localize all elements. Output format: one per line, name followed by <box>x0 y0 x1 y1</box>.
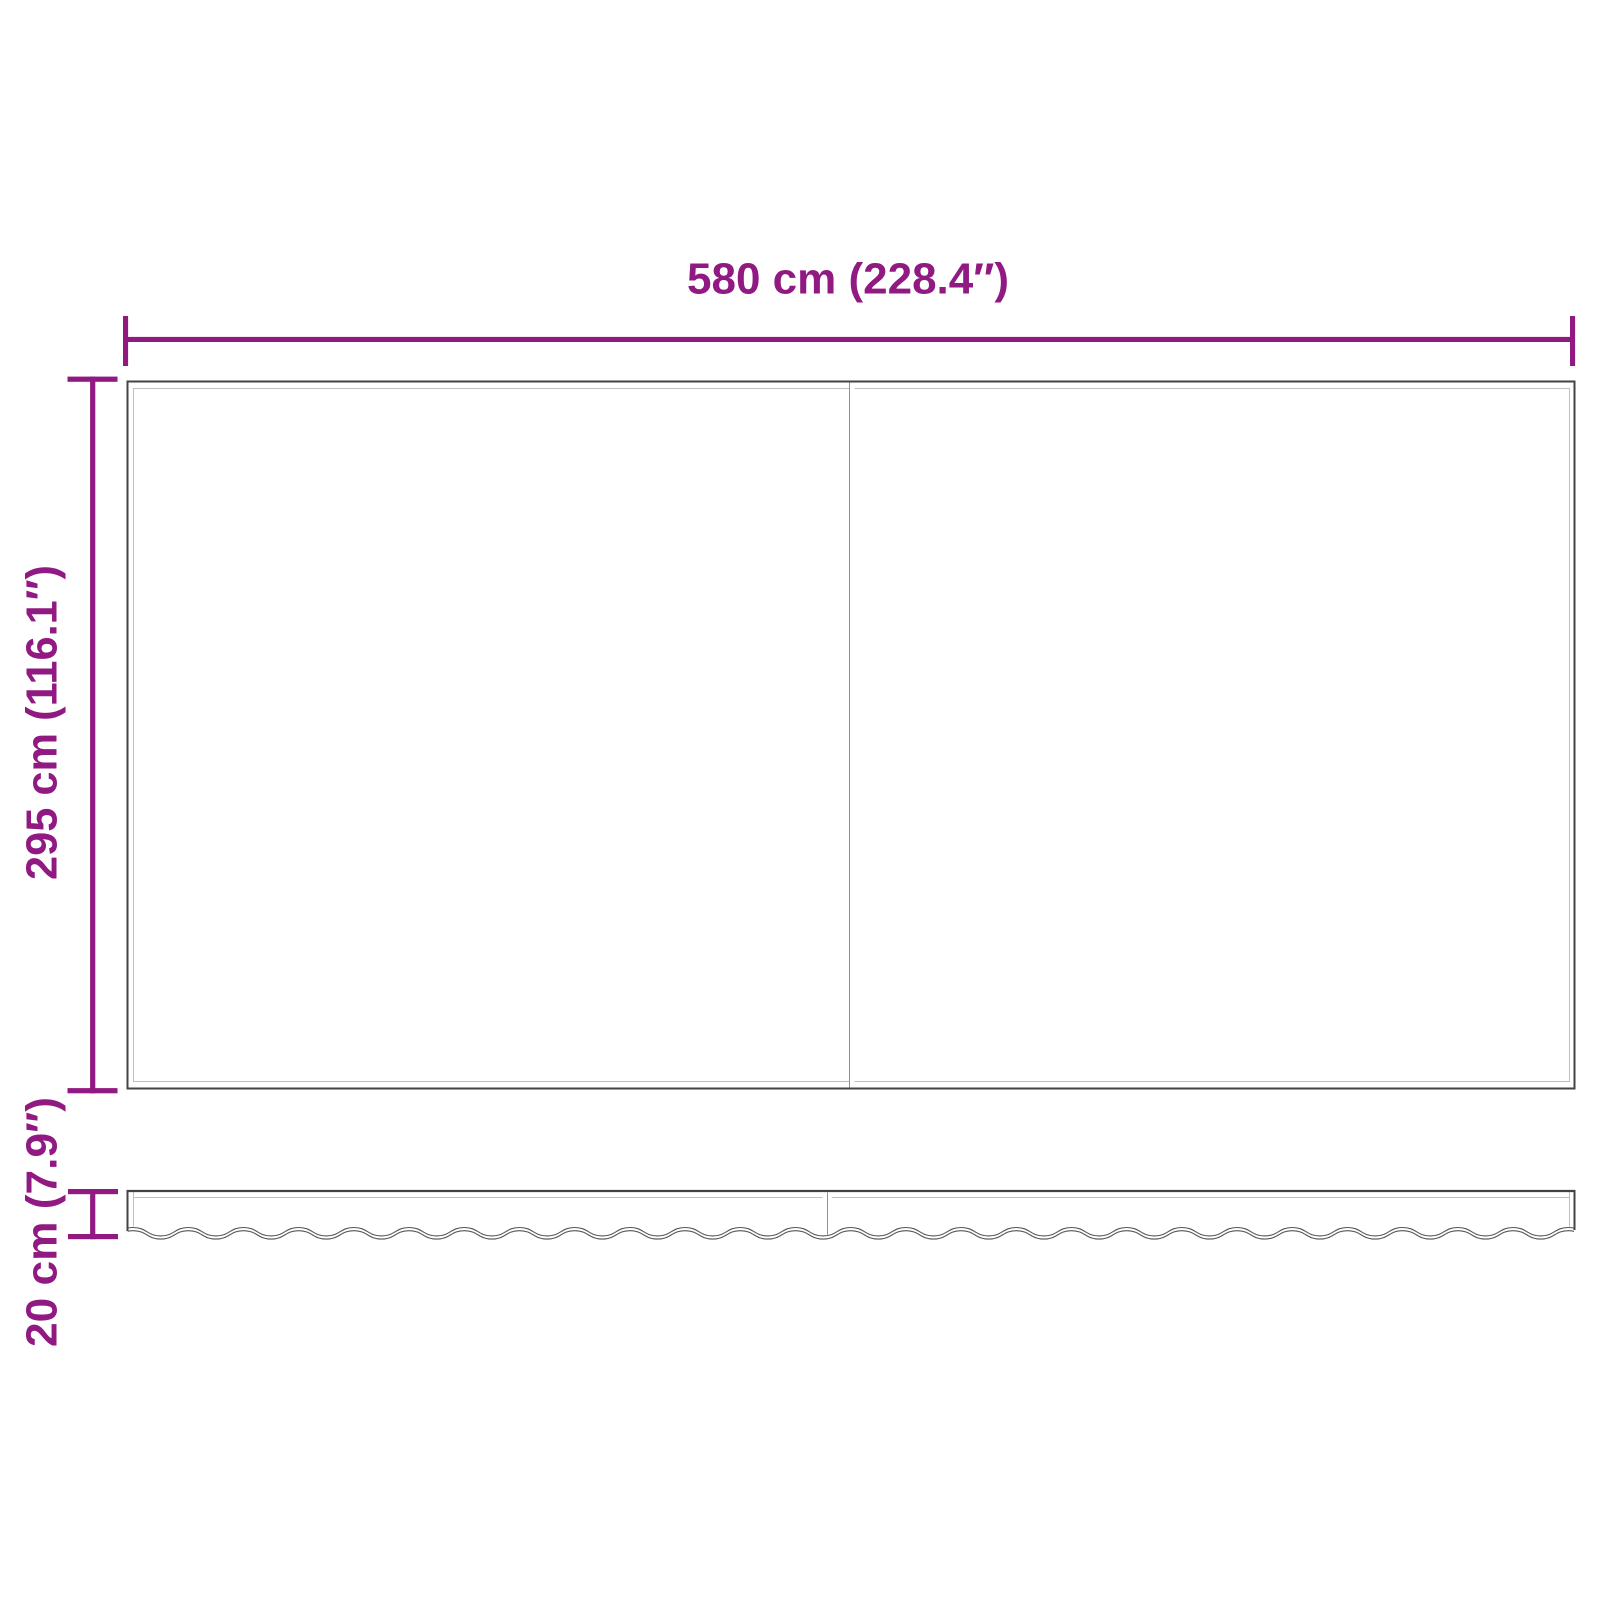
svg-text:580 cm (228.4″): 580 cm (228.4″) <box>687 255 1009 304</box>
svg-text:295 cm (116.1″): 295 cm (116.1″) <box>18 565 67 880</box>
svg-text:20 cm (7.9″): 20 cm (7.9″) <box>18 1097 67 1347</box>
